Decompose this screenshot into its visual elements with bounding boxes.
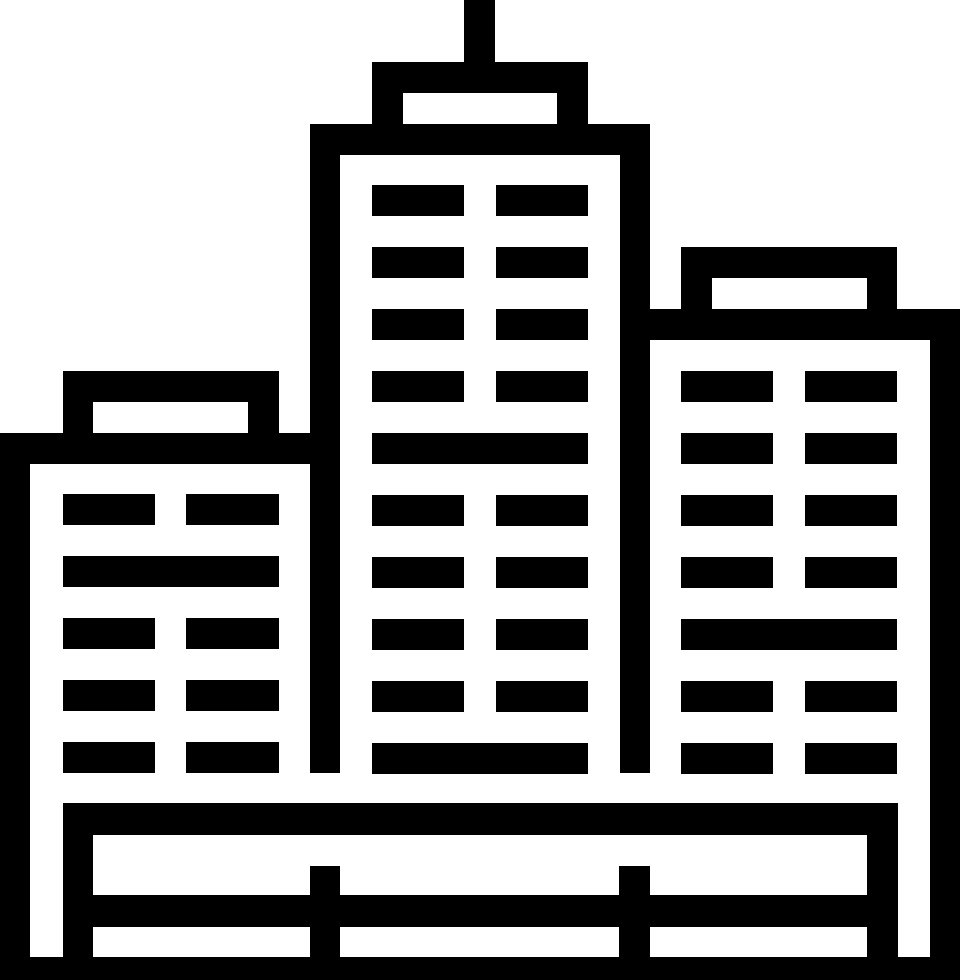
left-window-r5-c1 (63, 742, 155, 773)
right-building-roof-band (650, 309, 960, 340)
center-window-r9-c2 (496, 681, 588, 712)
center-building-roof-band (310, 124, 650, 155)
right-window-r3-c2 (805, 495, 897, 526)
left-building-cap-window (93, 402, 248, 433)
right-window-r4-c2 (805, 557, 897, 588)
center-window-r4-c1 (372, 371, 464, 402)
right-building-outer-wall (930, 340, 960, 980)
right-window-r2-c1 (681, 433, 773, 464)
center-building-left-wall (310, 155, 340, 773)
center-window-r6-c2 (496, 495, 588, 526)
center-window-r4-c2 (496, 371, 588, 402)
center-window-r2-c2 (496, 247, 588, 278)
right-window-r5-wide (681, 619, 897, 650)
left-window-r1-c2 (186, 494, 279, 525)
left-window-r1-c1 (63, 494, 155, 525)
antenna-mast (464, 0, 495, 62)
center-window-r5-wide (372, 433, 588, 464)
right-window-r7-c1 (681, 743, 773, 774)
right-window-r7-c2 (805, 743, 897, 774)
left-window-r4-c2 (186, 680, 279, 711)
city-skyline-icon (0, 0, 960, 980)
left-window-r2-wide (63, 556, 279, 587)
center-window-r3-c2 (496, 309, 588, 340)
center-building-cap-window (403, 93, 557, 124)
right-window-r4-c1 (681, 557, 773, 588)
center-window-r7-c1 (372, 557, 464, 588)
left-window-r3-c1 (63, 618, 155, 649)
center-window-r8-c1 (372, 619, 464, 650)
center-window-r8-c2 (496, 619, 588, 650)
center-window-r3-c1 (372, 309, 464, 340)
left-building-roof-band (0, 433, 310, 464)
right-window-r2-c2 (805, 433, 897, 464)
center-window-r10-wide (372, 743, 588, 774)
center-window-r6-c1 (372, 495, 464, 526)
right-window-r1-c1 (681, 371, 773, 402)
right-window-r1-c2 (805, 371, 897, 402)
center-window-r2-c1 (372, 247, 464, 278)
right-window-r6-c2 (805, 681, 897, 712)
center-window-r1-c2 (496, 185, 588, 216)
left-building-outer-wall (0, 463, 30, 980)
left-window-r3-c2 (186, 618, 279, 649)
center-building-right-wall (620, 155, 650, 773)
fence-rail (63, 895, 898, 927)
right-window-r6-c1 (681, 681, 773, 712)
left-window-r5-c2 (186, 742, 279, 773)
plaza-base-band (63, 803, 898, 835)
right-window-r3-c1 (681, 495, 773, 526)
center-window-r1-c1 (372, 185, 464, 216)
left-window-r4-c1 (63, 680, 155, 711)
right-building-cap-window (712, 278, 867, 309)
ground-band (0, 957, 960, 980)
center-window-r7-c2 (496, 557, 588, 588)
center-window-r9-c1 (372, 681, 464, 712)
icon-canvas (0, 0, 960, 980)
